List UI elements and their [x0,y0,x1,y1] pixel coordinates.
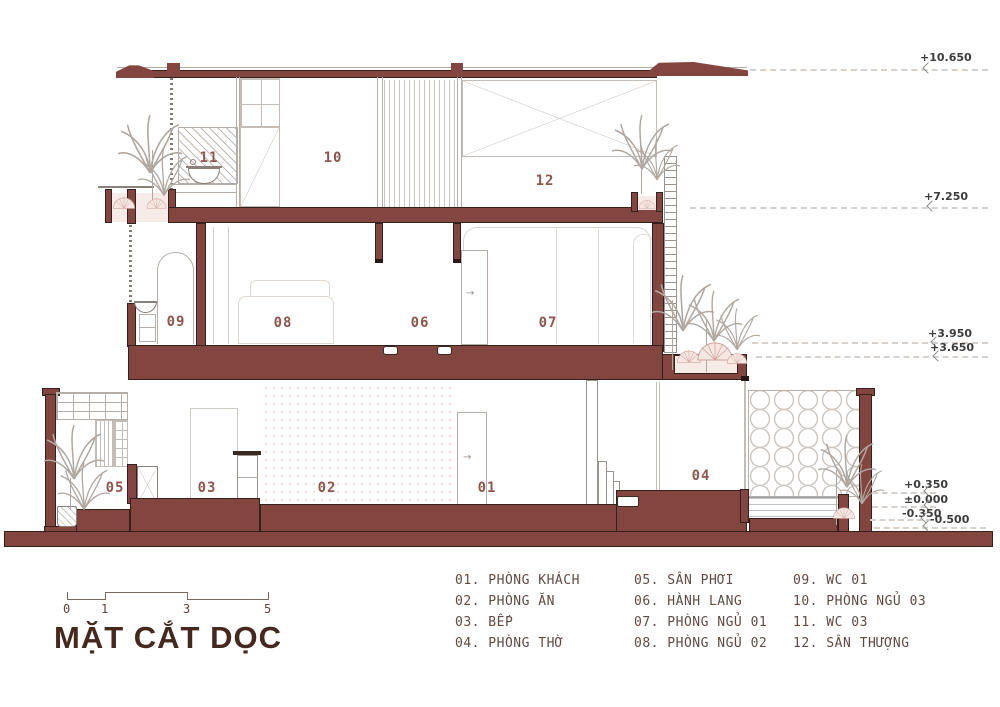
roof-stub [167,63,180,71]
site-ground [4,531,993,547]
level-line [756,356,988,358]
palm-plant [634,136,680,182]
legend-item: 10. PHÒNG NGỦ 03 [793,594,926,609]
legend-item: 03. BẾP [455,615,513,630]
scale-number: 5 [264,602,271,616]
legend-item: 07. PHÒNG NGỦ 01 [634,615,767,630]
threshold [437,346,452,355]
legend-item: 06. HÀNH LANG [634,594,742,609]
room-label-12: 12 [536,173,555,189]
brick-screen-wall [56,392,128,420]
scale-segment [187,599,268,600]
partition [656,382,657,490]
room-label-10: 10 [324,150,343,166]
shelf-grid [240,78,280,127]
partition [382,77,383,207]
wall-stub [375,223,383,263]
partition [659,382,660,490]
glass-line [744,381,746,492]
fan-bush [146,197,167,209]
bed-outline [250,280,330,296]
curtain-texture [262,384,456,504]
palm-plant [58,460,110,512]
planter-post [631,192,638,212]
room-label-02: 02 [318,480,337,496]
kitchen-island [237,455,258,502]
room-label-05: 05 [106,480,125,496]
stair-flight [586,380,598,507]
sink-icon [134,301,157,313]
elevation-label: -0.500 [930,513,969,526]
sink-pedestal [139,314,156,342]
door-frame [453,259,461,263]
legend-item: 08. PHÒNG NGỦ 02 [634,636,767,651]
legend-item: 04. PHÒNG THỜ [455,636,563,651]
partition [457,77,458,207]
level-mark [922,62,933,73]
level-line [750,69,988,71]
room-label-08: 08 [274,315,293,331]
door-frame [375,259,383,263]
door-swing-arrow: → [466,288,474,299]
roof-right-upturn [649,62,748,76]
tub-faucet [190,159,196,165]
pool-lip [740,489,749,523]
legend-item: 02. PHÒNG ĂN [455,594,555,609]
drawing-title: MẶT CẮT DỌC [54,620,282,656]
pool-water [749,497,838,519]
palm-plant [138,146,190,198]
section-drawing: → → [0,0,1000,707]
partition [236,77,237,207]
scale-number: 0 [63,602,70,616]
fan-bush [832,506,856,519]
legend-item: 12. SÂN THƯỢNG [793,636,910,651]
wardrobe-line [598,229,599,344]
roof-slab [127,70,657,78]
room-label-11: 11 [200,150,219,166]
fan-bush [726,352,748,364]
legend-item: 11. WC 03 [793,615,868,630]
scale-tick [268,592,269,600]
bottom-step [617,496,639,507]
fan-bush [112,196,136,209]
room-label-03: 03 [198,480,217,496]
legend-item: 05. SÂN PHƠI [634,573,734,588]
closet-cabinet [240,127,280,207]
planter-post [656,192,663,212]
shelf-line [237,477,258,478]
room-label-06: 06 [411,315,430,331]
scale-segment [67,599,105,600]
threshold [383,346,398,355]
palm-plant [840,462,884,506]
legend-item: 01. PHÒNG KHÁCH [455,573,580,588]
shelf-line [139,327,156,328]
room-label-04: 04 [692,468,711,484]
planter-post [105,189,112,223]
arched-door [157,252,194,344]
wardrobe-line [213,227,214,344]
room-label-01: 01 [478,480,497,496]
partition [377,77,378,207]
stair-shaft-hatch [384,80,457,207]
wall [196,223,206,346]
scale-segment [105,592,187,593]
mesh-curtain [129,225,132,305]
scale-number: 1 [101,602,108,616]
door-swing-arrow: → [463,452,471,463]
room-label-09: 09 [167,314,186,330]
scale-number: 3 [183,602,190,616]
room-label-07: 07 [539,315,558,331]
level-line [690,207,988,209]
roof-top-line [117,67,747,68]
wall [127,303,136,347]
legend-item: 09. WC 01 [793,573,868,588]
scale-tick [105,592,106,600]
arched-niche [633,234,654,343]
tile-strip [114,420,128,467]
wall-stub [453,223,461,263]
fan-bush [638,199,656,209]
roof-stub [451,63,463,71]
wardrobe-line [228,227,229,344]
terrace-floor-slab [168,207,663,223]
